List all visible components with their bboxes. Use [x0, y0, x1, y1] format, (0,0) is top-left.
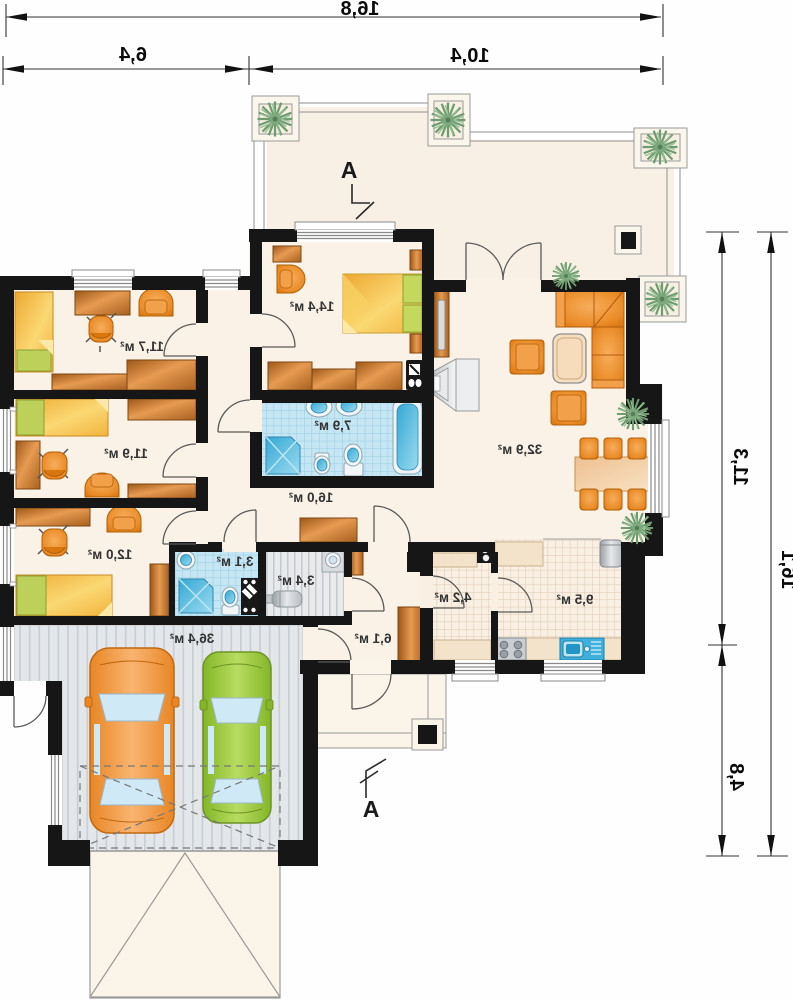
svg-text:A: A: [341, 157, 358, 183]
svg-text:11,3: 11,3: [729, 448, 751, 486]
svg-text:32,9 м²: 32,9 м²: [497, 442, 542, 457]
svg-text:A: A: [363, 796, 380, 822]
svg-text:4,8: 4,8: [725, 763, 747, 791]
svg-text:7,9 м²: 7,9 м²: [314, 418, 352, 433]
svg-text:9,5 м²: 9,5 м²: [556, 592, 594, 607]
svg-text:11,9 м²: 11,9 м²: [104, 446, 148, 461]
svg-text:36,4 м²: 36,4 м²: [169, 631, 214, 646]
svg-text:3,1 м²: 3,1 м²: [216, 554, 254, 569]
svg-text:6,1 м²: 6,1 м²: [354, 631, 392, 646]
svg-text:16,8: 16,8: [341, 0, 380, 20]
svg-text:3,4 м²: 3,4 м²: [277, 573, 315, 588]
svg-text:12,0 м²: 12,0 м²: [87, 547, 132, 562]
svg-text:6,4: 6,4: [118, 44, 147, 66]
svg-text:16,1: 16,1: [777, 551, 793, 590]
svg-text:10,4: 10,4: [450, 45, 490, 67]
svg-text:11,7 м²: 11,7 м²: [120, 339, 164, 354]
svg-text:4,2 м²: 4,2 м²: [434, 590, 472, 605]
svg-text:16,0 м²: 16,0 м²: [288, 490, 333, 505]
svg-text:14,4 м²: 14,4 м²: [289, 299, 334, 314]
